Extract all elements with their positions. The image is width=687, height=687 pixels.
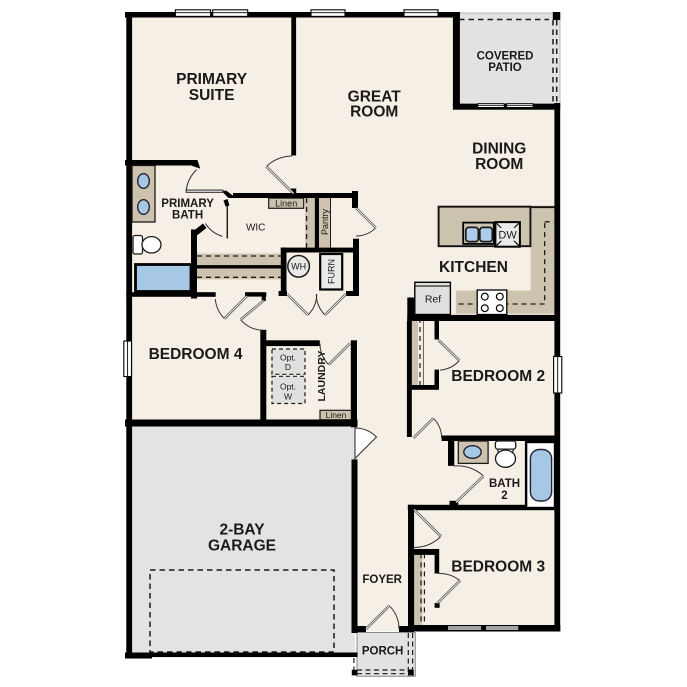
svg-text:Opt.: Opt. bbox=[280, 382, 296, 392]
svg-text:LAUNDRY: LAUNDRY bbox=[316, 351, 328, 402]
svg-text:ROOM: ROOM bbox=[350, 104, 398, 121]
svg-text:GARAGE: GARAGE bbox=[208, 537, 276, 554]
svg-text:PRIMARY: PRIMARY bbox=[176, 71, 248, 88]
svg-text:WIC: WIC bbox=[246, 222, 265, 233]
svg-text:DINING: DINING bbox=[472, 140, 526, 157]
svg-text:COVERED: COVERED bbox=[477, 51, 534, 63]
svg-text:PRIMARY: PRIMARY bbox=[161, 198, 214, 210]
svg-text:BATH: BATH bbox=[489, 478, 520, 490]
svg-text:SUITE: SUITE bbox=[189, 87, 235, 104]
svg-text:PORCH: PORCH bbox=[362, 645, 404, 657]
svg-text:W: W bbox=[284, 392, 292, 402]
svg-text:DW: DW bbox=[498, 229, 517, 241]
svg-text:BEDROOM 3: BEDROOM 3 bbox=[451, 559, 545, 576]
svg-text:BEDROOM 2: BEDROOM 2 bbox=[451, 368, 545, 385]
svg-text:BATH: BATH bbox=[172, 209, 203, 221]
svg-text:Opt.: Opt. bbox=[280, 353, 296, 363]
svg-text:FOYER: FOYER bbox=[362, 574, 402, 586]
svg-text:2-BAY: 2-BAY bbox=[219, 522, 265, 539]
svg-text:Linen: Linen bbox=[326, 410, 347, 420]
svg-text:Linen: Linen bbox=[275, 199, 297, 209]
svg-text:FURN: FURN bbox=[327, 259, 337, 284]
svg-text:Pantry: Pantry bbox=[320, 208, 330, 235]
svg-text:PATIO: PATIO bbox=[488, 62, 521, 74]
svg-text:D: D bbox=[285, 362, 291, 372]
svg-text:WH: WH bbox=[291, 262, 306, 272]
svg-text:BEDROOM 4: BEDROOM 4 bbox=[149, 346, 243, 363]
svg-text:2: 2 bbox=[501, 490, 507, 502]
svg-text:KITCHEN: KITCHEN bbox=[439, 259, 508, 276]
svg-text:ROOM: ROOM bbox=[475, 156, 523, 173]
svg-text:Ref: Ref bbox=[425, 293, 441, 305]
